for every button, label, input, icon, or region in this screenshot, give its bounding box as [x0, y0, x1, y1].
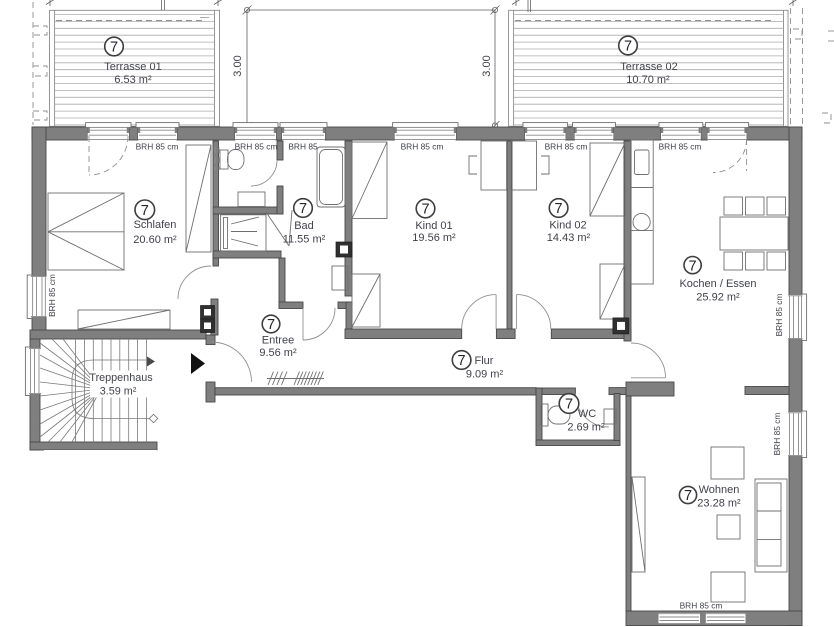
svg-text:3.00: 3.00	[232, 55, 244, 76]
svg-text:Terrasse 01: Terrasse 01	[104, 61, 161, 73]
svg-text:10.70 m²: 10.70 m²	[626, 74, 670, 86]
svg-text:2.69 m²: 2.69 m²	[567, 422, 605, 434]
svg-text:6.53 m²: 6.53 m²	[114, 74, 152, 86]
svg-text:7: 7	[141, 203, 149, 219]
svg-text:Terrasse 02: Terrasse 02	[620, 61, 677, 73]
svg-text:BRH 85 cm: BRH 85 cm	[136, 142, 179, 152]
svg-text:7: 7	[684, 488, 692, 504]
svg-text:7: 7	[565, 397, 573, 413]
svg-text:Flur: Flur	[475, 355, 494, 367]
svg-text:3.00: 3.00	[481, 55, 493, 76]
svg-text:BRH 85 cm: BRH 85 cm	[680, 601, 723, 611]
svg-text:25.92 m²: 25.92 m²	[696, 292, 740, 304]
svg-text:BRH 85 cm: BRH 85 cm	[659, 142, 702, 152]
svg-text:BRH 85 cm: BRH 85 cm	[545, 142, 588, 152]
svg-text:Schlafen: Schlafen	[134, 219, 177, 231]
svg-text:Treppenhaus: Treppenhaus	[89, 372, 153, 384]
svg-text:BRH 85 cm: BRH 85 cm	[47, 274, 57, 317]
svg-text:19.56 m²: 19.56 m²	[412, 232, 456, 244]
svg-text:7: 7	[110, 40, 118, 56]
svg-text:7: 7	[421, 202, 429, 218]
svg-text:BRH 85 cm: BRH 85 cm	[772, 413, 782, 456]
svg-text:7: 7	[624, 39, 632, 55]
svg-text:BRH 85: BRH 85	[288, 142, 318, 152]
svg-text:Wohnen: Wohnen	[699, 484, 740, 496]
svg-text:11.55 m²: 11.55 m²	[283, 234, 326, 246]
svg-text:WC: WC	[578, 408, 596, 420]
svg-text:BRH 85 cm: BRH 85 cm	[235, 142, 278, 152]
svg-text:3.59 m²: 3.59 m²	[100, 386, 137, 398]
svg-text:14.43 m²: 14.43 m²	[547, 232, 591, 244]
svg-text:Entree: Entree	[262, 335, 294, 347]
svg-text:BRH 85 cm: BRH 85 cm	[774, 294, 784, 337]
svg-text:Kind 02: Kind 02	[549, 220, 586, 232]
svg-text:9.56 m²: 9.56 m²	[259, 347, 297, 359]
svg-text:23.28 m²: 23.28 m²	[697, 498, 741, 510]
svg-text:7: 7	[267, 317, 275, 333]
svg-text:7: 7	[555, 201, 563, 217]
svg-text:Kind 01: Kind 01	[415, 220, 452, 232]
svg-text:Kochen / Essen: Kochen / Essen	[679, 278, 756, 290]
svg-text:7: 7	[299, 201, 307, 217]
svg-text:Bad: Bad	[294, 220, 314, 232]
svg-text:BRH 85 cm: BRH 85 cm	[401, 142, 444, 152]
svg-text:20.60 m²: 20.60 m²	[133, 234, 177, 246]
svg-text:9.09 m²: 9.09 m²	[466, 369, 504, 381]
svg-text:7: 7	[689, 258, 697, 274]
svg-text:7: 7	[458, 353, 466, 369]
